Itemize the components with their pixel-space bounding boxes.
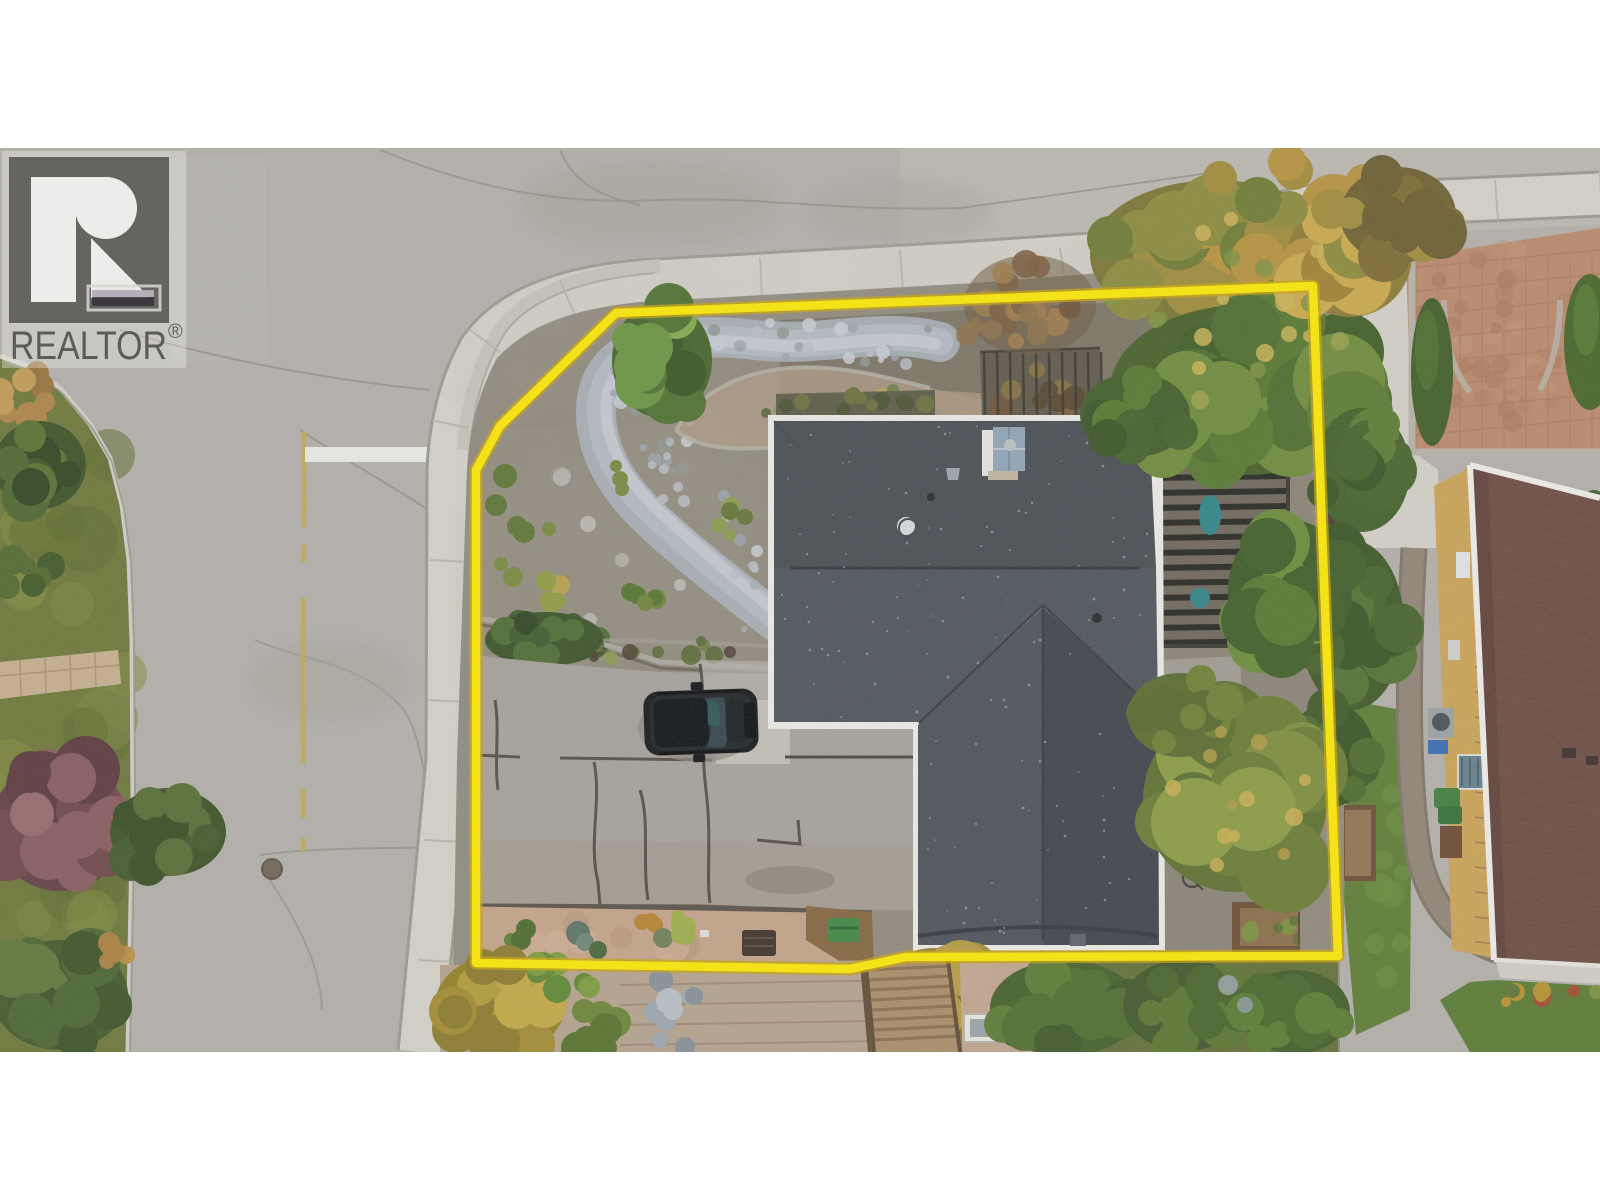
svg-text:REALTOR: REALTOR bbox=[10, 324, 167, 368]
svg-text:®: ® bbox=[168, 321, 183, 343]
